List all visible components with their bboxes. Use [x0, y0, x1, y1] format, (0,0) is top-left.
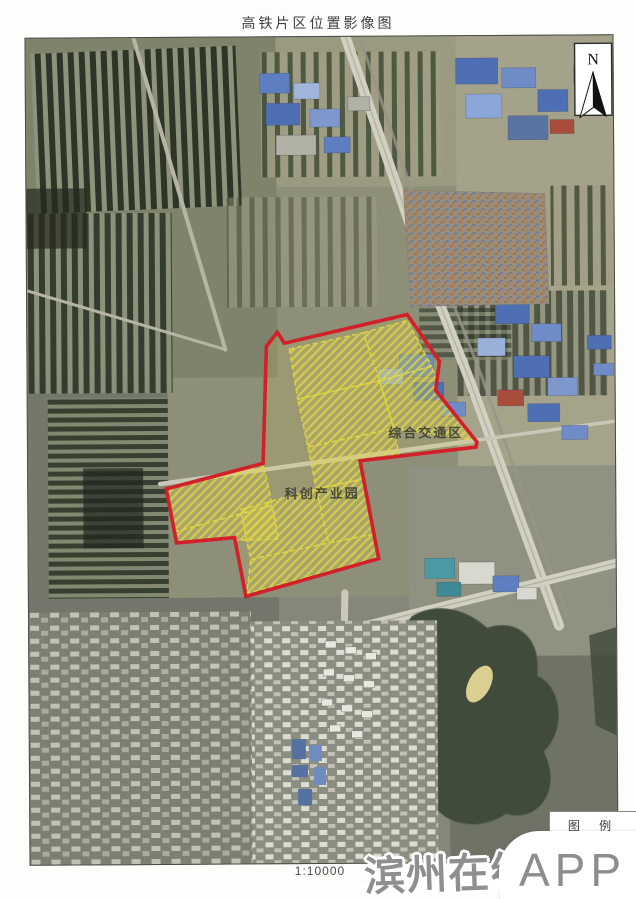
satellite-imagery: 综合交通区 科创产业园 N — [25, 35, 617, 865]
zone-label-transport: 综合交通区 — [388, 425, 463, 440]
zone-label-industry: 科创产业园 — [285, 486, 360, 501]
urban-south-center — [251, 620, 438, 863]
north-arrow: N — [575, 43, 612, 117]
watermark-app-label: APP — [519, 843, 626, 897]
watermark-app-bubble: APP — [499, 831, 636, 899]
urban-southwest — [29, 611, 253, 864]
north-label: N — [587, 51, 599, 68]
screenshot-page: 高铁片区位置影像图 — [0, 0, 636, 899]
map-title: 高铁片区位置影像图 — [0, 13, 636, 33]
village-cluster — [403, 190, 549, 307]
map-scale: 1:10000 — [260, 864, 380, 878]
satellite-map: 综合交通区 科创产业园 N — [24, 34, 618, 866]
